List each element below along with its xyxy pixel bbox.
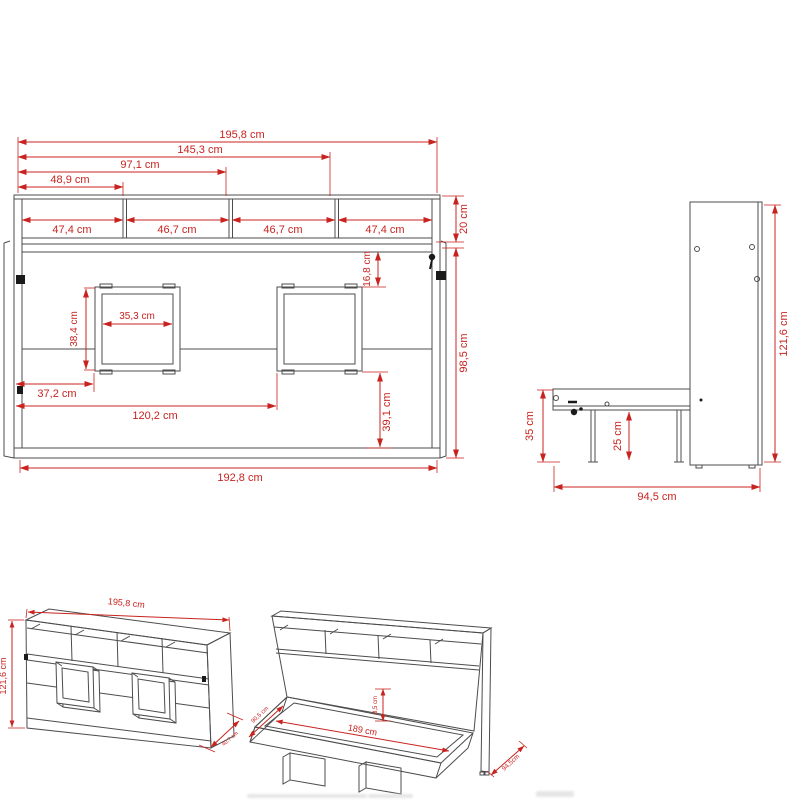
bottom-smudge — [536, 791, 574, 797]
hinge-icon — [436, 271, 446, 280]
open-dimension-lines — [249, 689, 527, 777]
dim-side-height-121-6: 121,6 cm — [778, 311, 790, 356]
side-dimension-lines — [537, 205, 781, 492]
dim-bed-length-189: 189 cm — [347, 723, 378, 738]
dim-shelf-compartment-4: 47,4 cm — [365, 224, 404, 236]
hinge-icon — [17, 386, 23, 394]
dim-closed-depth: 40,7 cm — [221, 730, 240, 747]
dim-shelf-compartment-2: 46,7 cm — [157, 224, 196, 236]
closed-cabinet-linework — [24, 609, 234, 748]
dim-front-37-2: 37,2 cm — [37, 388, 76, 400]
dim-front-120-2: 120,2 cm — [132, 410, 177, 422]
side-key-icon — [568, 402, 583, 415]
side-dimension-labels: 121,6 cm 35 cm 25 cm 94,5 cm — [524, 311, 790, 503]
dim-closed-width-195-8: 195,8 cm — [107, 596, 145, 610]
front-elevation-view: 195,8 cm 145,3 cm 97,1 cm 48,9 cm 47,4 c… — [0, 100, 470, 520]
dim-front-total-width-top: 195,8 cm — [219, 129, 264, 141]
lock-icon — [202, 676, 206, 682]
dim-shelf-height-20: 20 cm — [458, 204, 470, 234]
dim-cube-height-38-4: 38,4 cm — [69, 311, 80, 347]
dim-shelf-compartment-1: 47,4 cm — [52, 224, 91, 236]
side-view: 121,6 cm 35 cm 25 cm 94,5 cm — [470, 140, 800, 520]
dim-cube-inner-width-35-3: 35,3 cm — [119, 311, 155, 322]
closed-bed-isometric-view: 195,8 cm 121,6 cm 40,7 cm — [0, 585, 245, 800]
dim-closed-height-121-6: 121,6 cm — [0, 657, 8, 694]
key-icon — [429, 254, 435, 260]
open-bed-isometric-view: 189 cm 8,5 cm 90,5 cm 94,5cm — [245, 590, 560, 800]
dim-rail-height-8-5: 8,5 cm — [373, 696, 379, 714]
dim-front-total-width-bottom: 192,8 cm — [217, 472, 262, 484]
closed-cube-shelves — [56, 662, 176, 723]
dim-side-bench-height-35: 35 cm — [524, 411, 536, 441]
dim-front-145-3: 145,3 cm — [177, 144, 222, 156]
dim-side-clearance-25: 25 cm — [612, 421, 624, 451]
dim-front-97-1: 97,1 cm — [120, 159, 159, 171]
bottom-smudge — [368, 794, 413, 798]
front-cube-shelves — [95, 284, 362, 374]
front-hinge-and-key-icons — [16, 254, 446, 394]
side-linework — [553, 202, 762, 468]
dim-shelf-compartment-3: 46,7 cm — [263, 224, 302, 236]
open-bed-platform-linework — [250, 697, 473, 794]
dim-front-39-1: 39,1 cm — [381, 392, 393, 431]
hinge-icon — [16, 275, 25, 284]
dim-front-48-9: 48,9 cm — [50, 174, 89, 186]
open-cabinet-linework — [272, 611, 491, 775]
bottom-smudge — [247, 794, 367, 798]
technical-drawing-page: 195,8 cm 145,3 cm 97,1 cm 48,9 cm 47,4 c… — [0, 0, 800, 800]
dim-side-depth-94-5: 94,5 cm — [637, 491, 676, 503]
dim-front-height-98-5: 98,5 cm — [458, 333, 470, 372]
front-dimension-lines — [16, 137, 464, 473]
dim-open-depth-94-5: 94,5cm — [501, 753, 522, 772]
dim-front-16-8: 16,8 cm — [362, 251, 373, 287]
